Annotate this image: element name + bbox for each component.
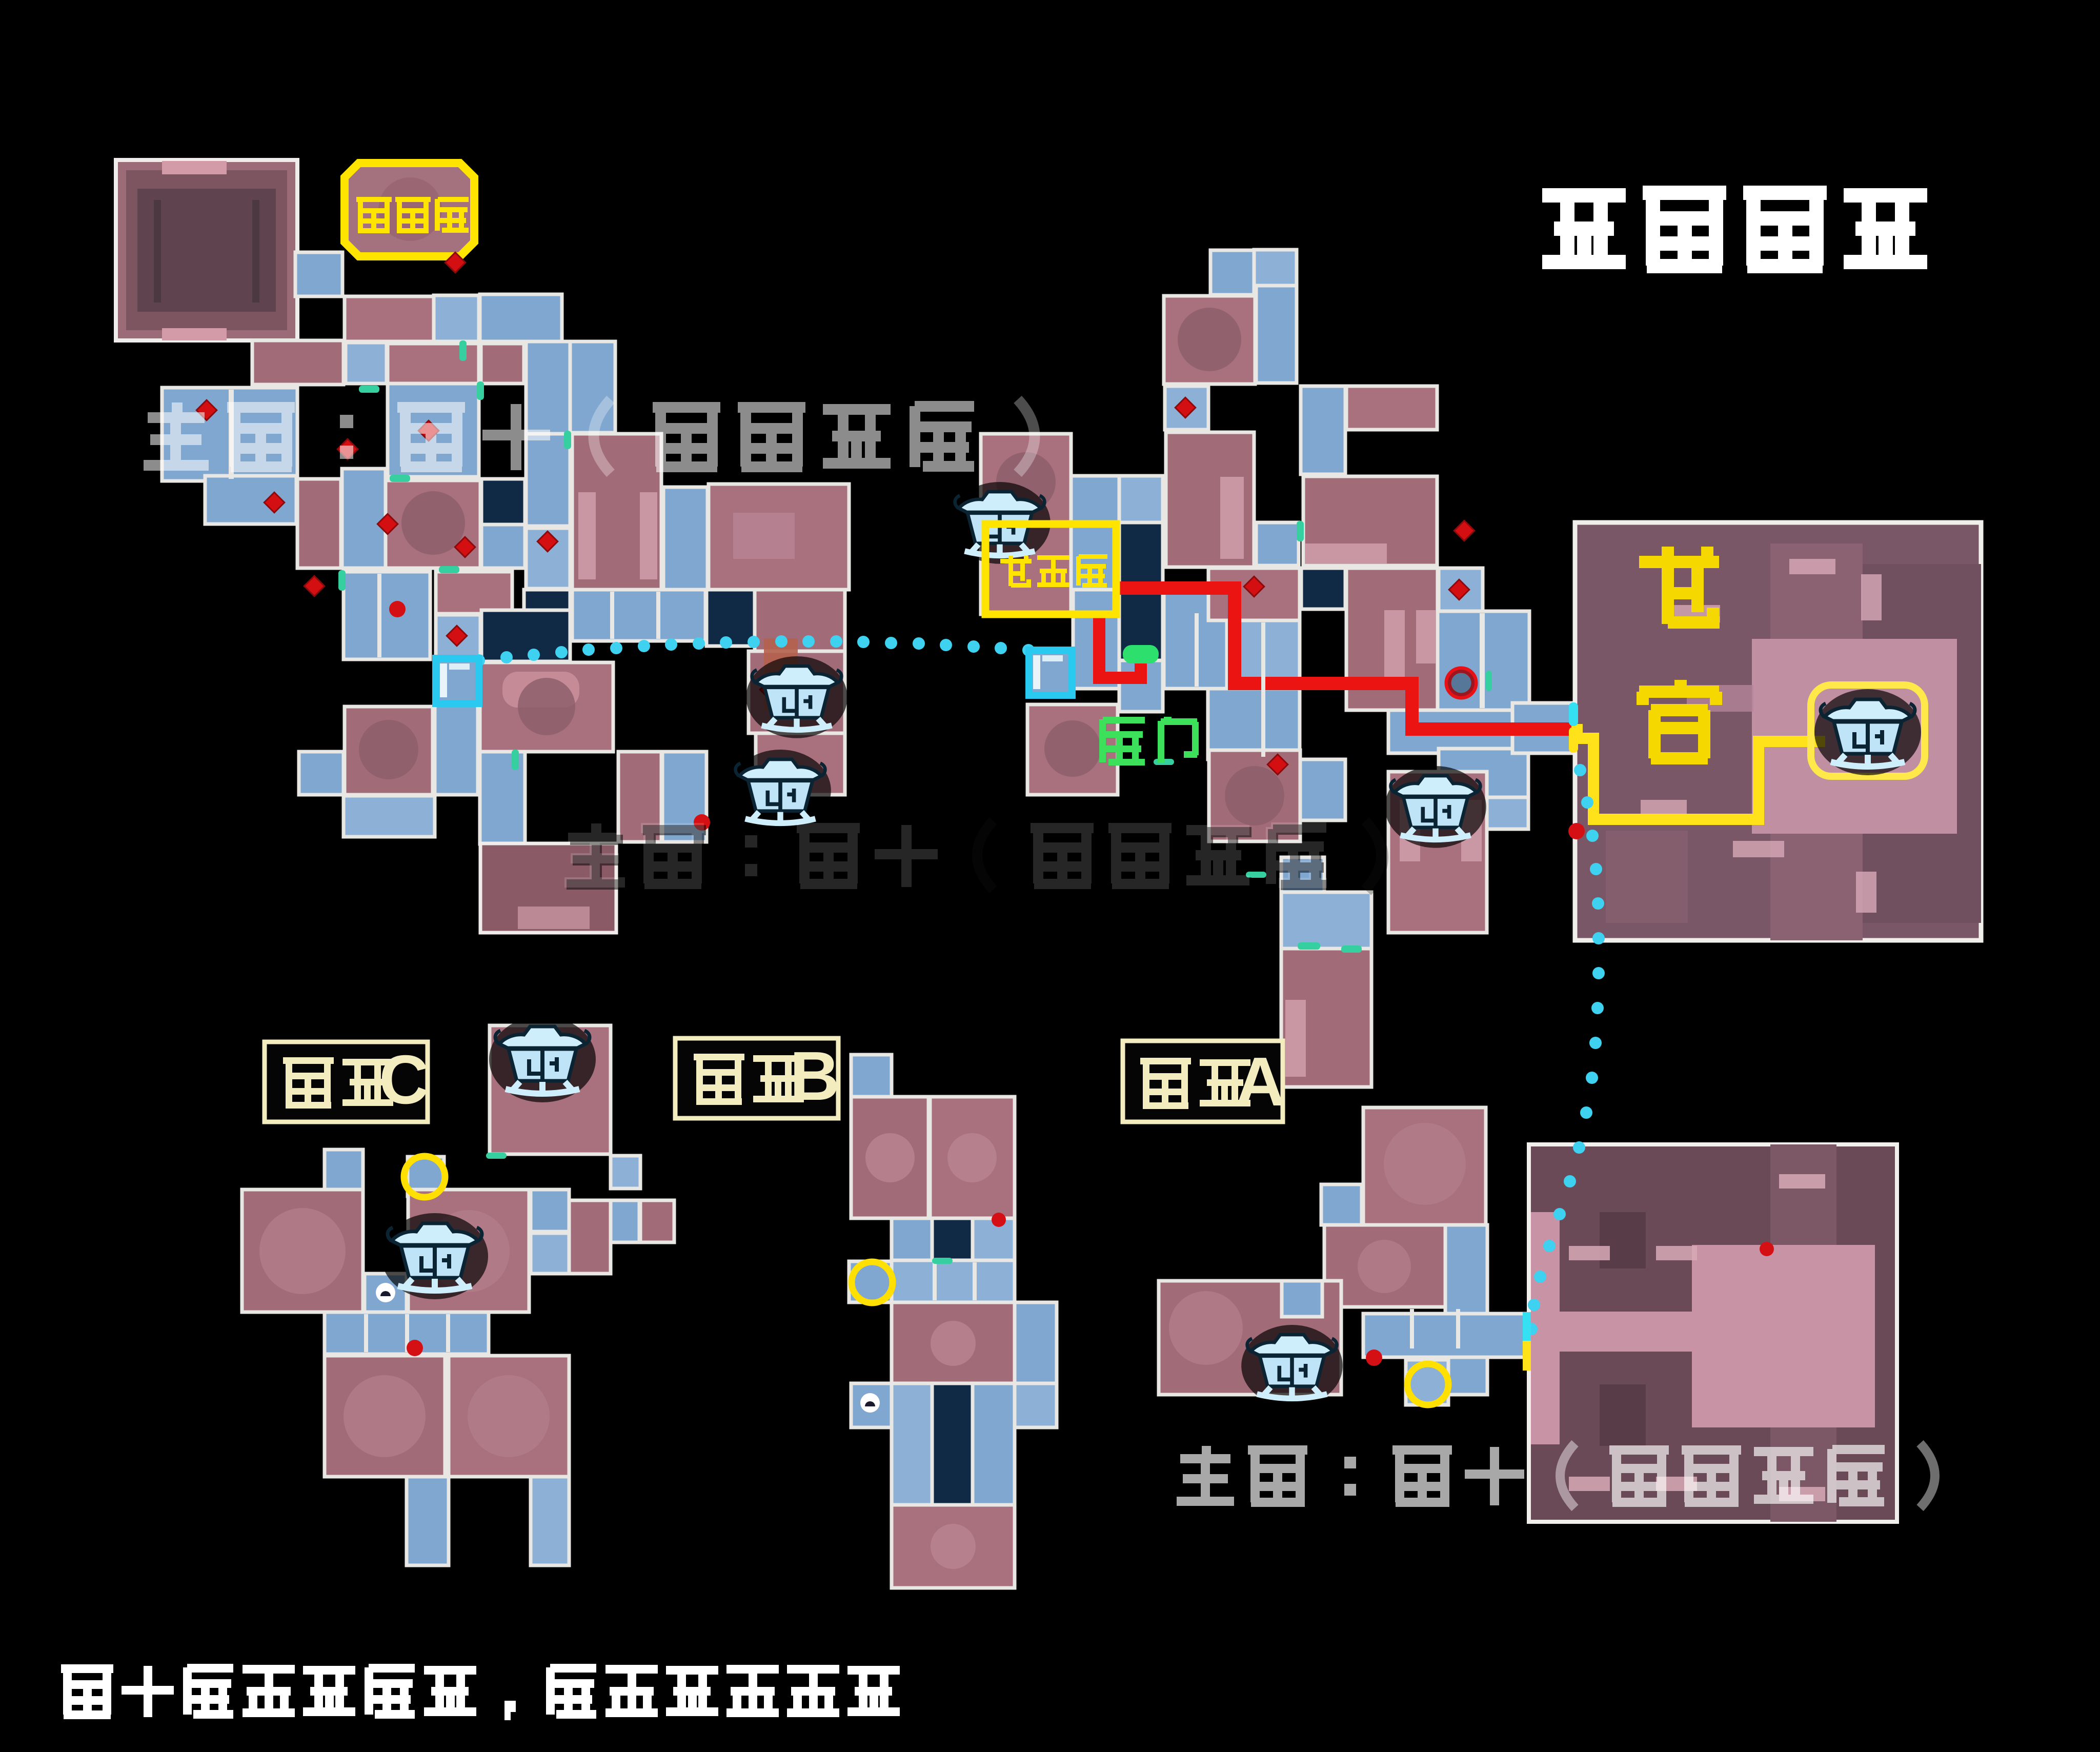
svg-text:C: C (379, 1041, 429, 1118)
svg-text:A: A (1235, 1043, 1285, 1120)
svg-text:B: B (790, 1037, 840, 1115)
